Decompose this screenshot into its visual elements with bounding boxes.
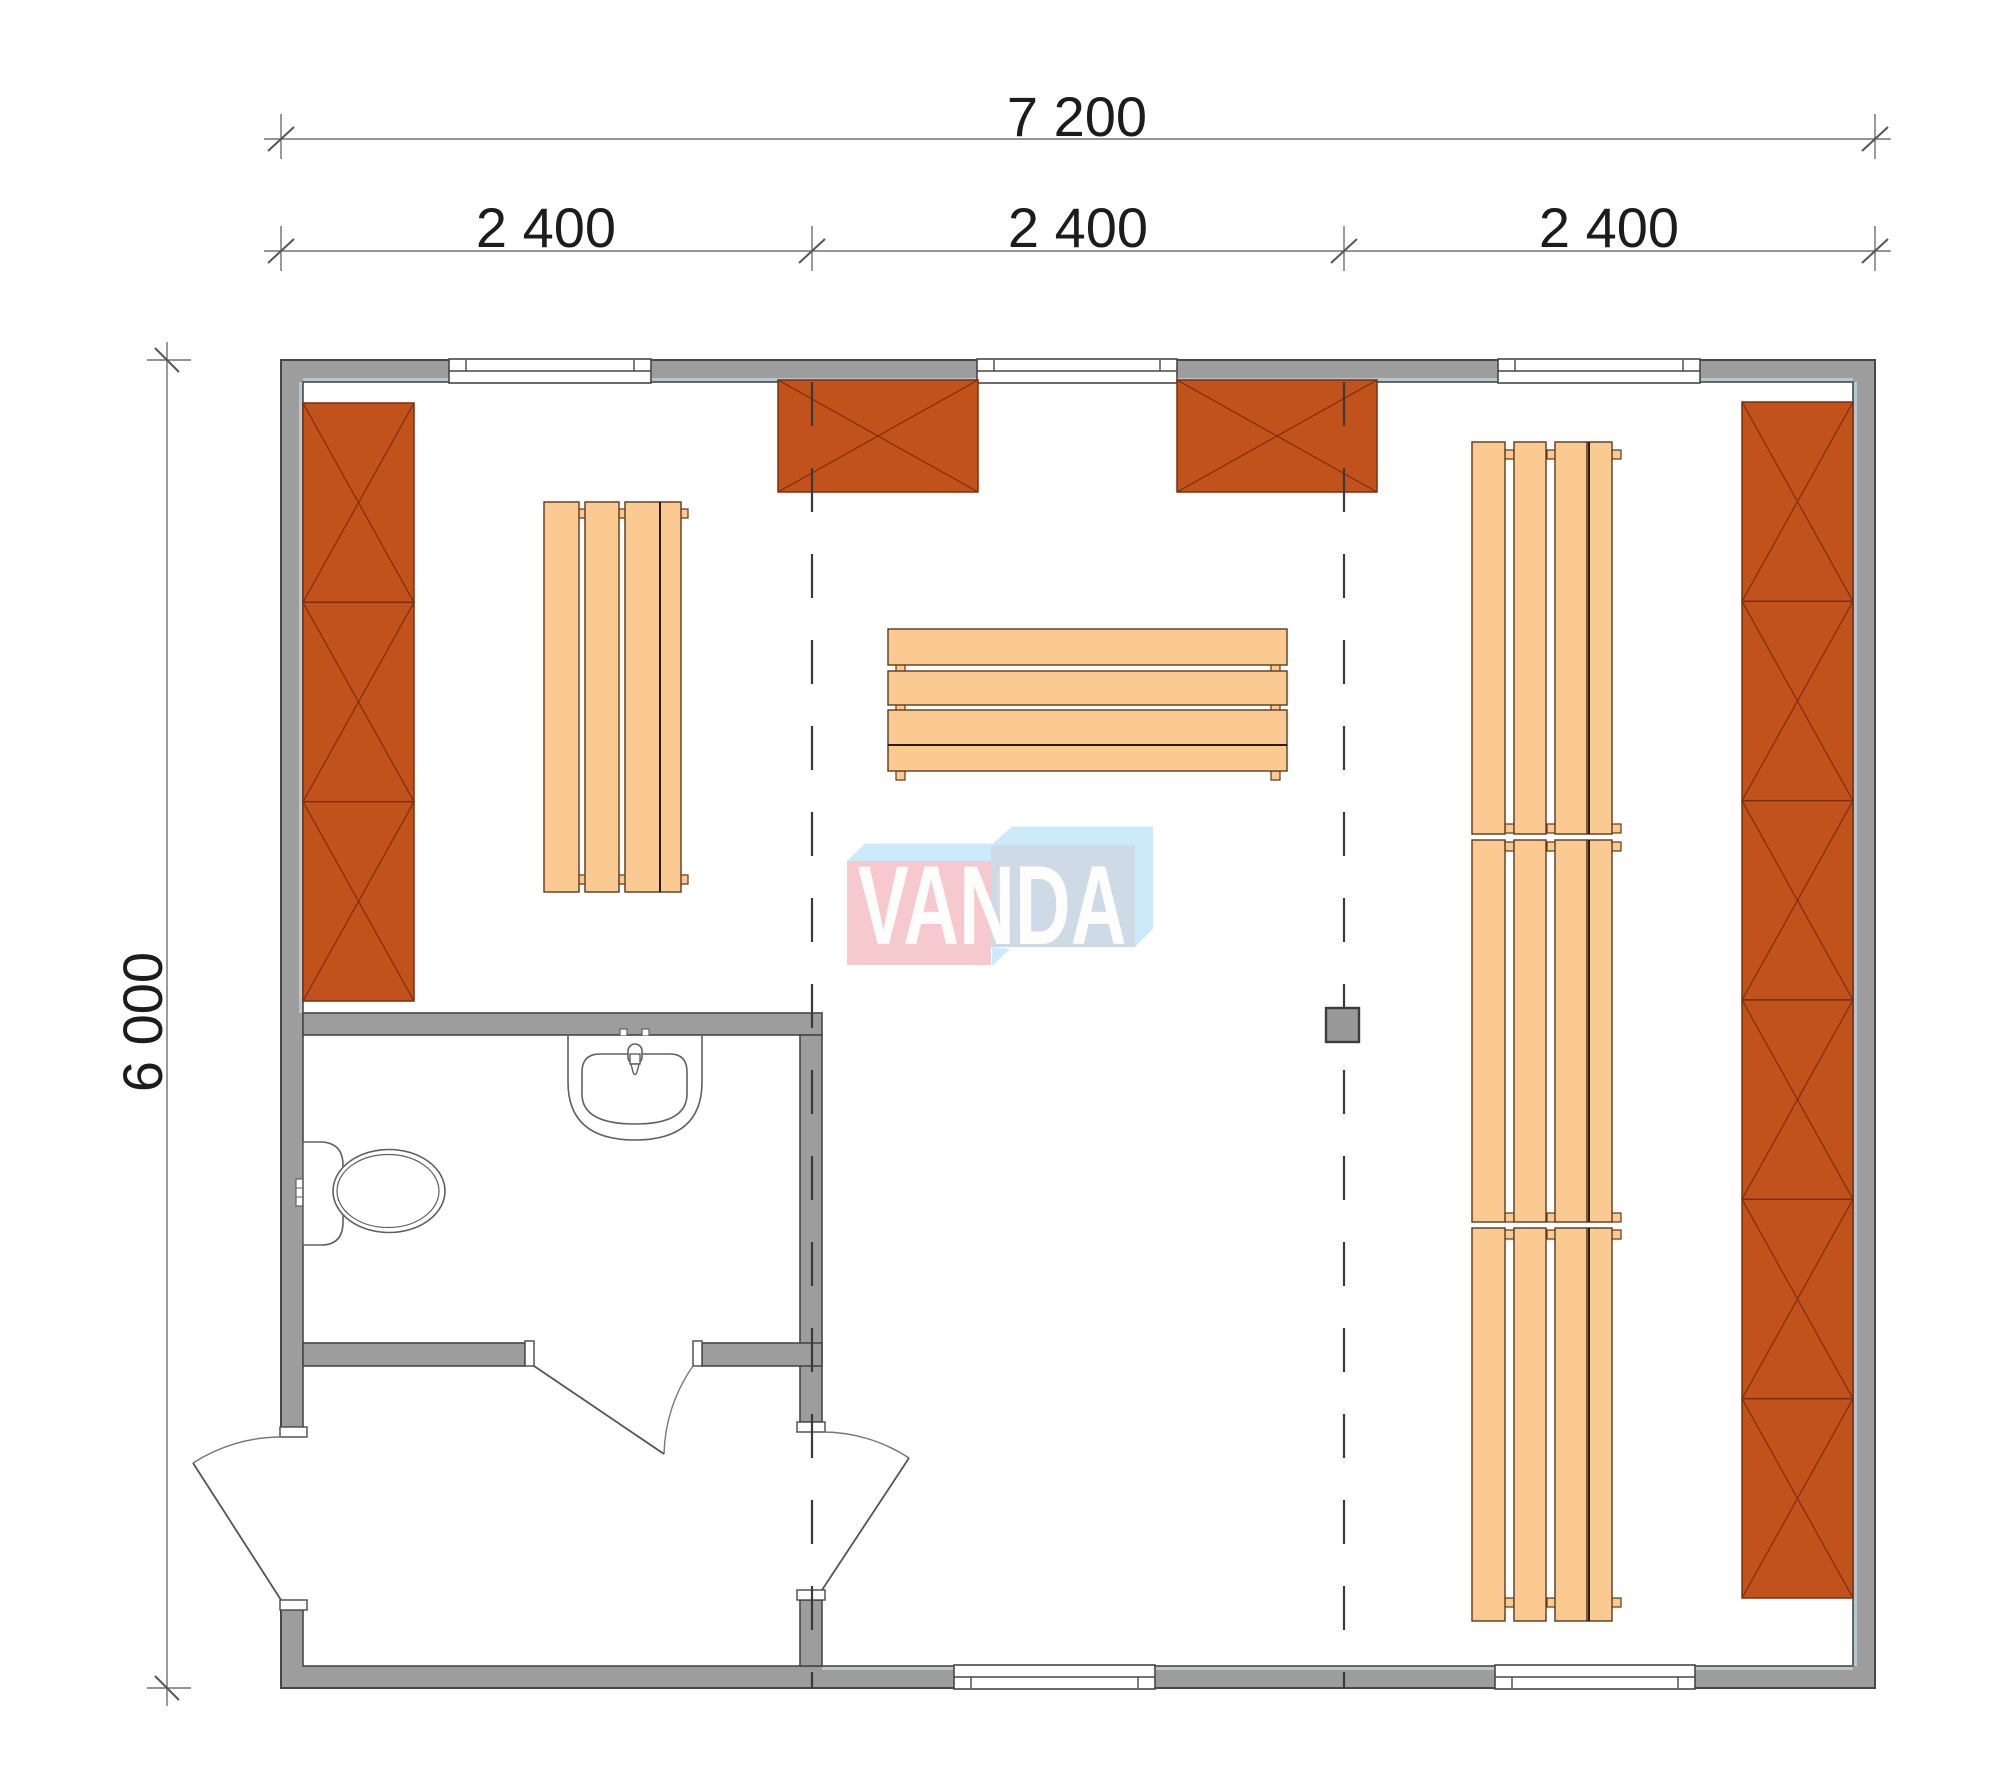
svg-text:2 400: 2 400 (1008, 196, 1148, 259)
svg-text:7 200: 7 200 (1007, 85, 1147, 148)
svg-text:2 400: 2 400 (476, 196, 616, 259)
svg-text:6 000: 6 000 (111, 952, 174, 1092)
svg-text:2 400: 2 400 (1539, 196, 1679, 259)
svg-text:VANDA: VANDA (857, 844, 1126, 969)
